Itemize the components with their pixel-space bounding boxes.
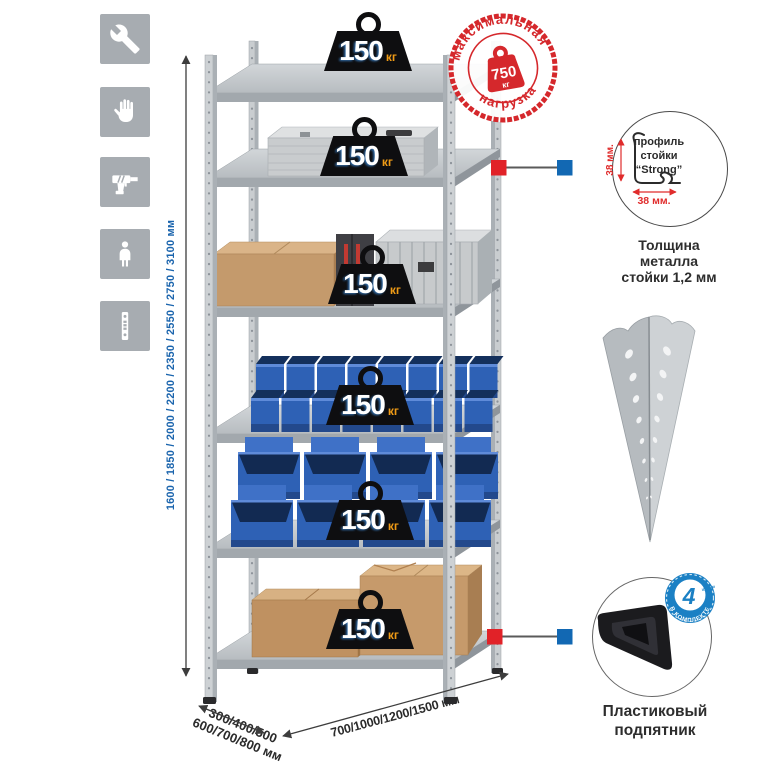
caption-line2: стойки 1,2 мм [621, 269, 717, 285]
load-unit: кг [386, 51, 397, 63]
profile-vertical-dim: 38 мм. [605, 144, 616, 176]
weight-body: 150 кг [320, 136, 408, 176]
post-front-right [443, 55, 455, 702]
load-unit: кг [382, 156, 393, 168]
shelf-load-badge-2: 150 кг [319, 117, 409, 176]
depth-dimension-line [199, 706, 264, 733]
shelf-load-badge-6: 150 кг [325, 590, 415, 649]
profile-label-line2: стойки [640, 150, 677, 162]
weight-body: 150 кг [326, 609, 414, 649]
post-back-left [249, 41, 259, 673]
load-value: 150 [341, 391, 385, 419]
plastic-foot-caption: Пластиковый подпятник [603, 702, 708, 741]
callout-connector-bottom [487, 629, 573, 645]
callout-connector-top [491, 160, 573, 176]
angle-post-illustration [603, 316, 695, 542]
load-value: 150 [339, 37, 383, 65]
weight-body: 150 кг [328, 264, 416, 304]
included-count-badge: 4 штуки в комплекте [663, 571, 717, 625]
shelf-load-badge-3: 150 кг [327, 245, 417, 304]
load-value: 150 [341, 615, 385, 643]
shelf-load-badge-1: 150 кг [323, 12, 413, 71]
caption-line1: Пластиковый [603, 702, 708, 721]
badge-number: 4 [682, 583, 696, 609]
load-unit: кг [388, 405, 399, 417]
profile-label-line1: профиль [634, 136, 684, 148]
load-unit: кг [388, 520, 399, 532]
weight-body: 150 кг [326, 385, 414, 425]
shelf-load-badge-4: 150 кг [325, 366, 415, 425]
product-infographic: 1600 / 1850 / 2000 / 2200 / 2350 / 2550 … [0, 0, 765, 765]
load-unit: кг [388, 629, 399, 641]
profile-horizontal-dim: 38 мм. [637, 195, 670, 207]
load-unit: кг [390, 284, 401, 296]
load-value: 150 [341, 506, 385, 534]
shelf-load-badge-5: 150 кг [325, 481, 415, 540]
max-load-stamp: максимальная нагрузка 750 кг [445, 10, 561, 126]
load-value: 150 [343, 270, 387, 298]
metal-thickness-caption: Толщина металла стойки 1,2 мм [621, 237, 717, 285]
caption-line2: подпятник [603, 721, 708, 740]
rack-feet [203, 668, 503, 704]
profile-label-line3: “Strong” [636, 164, 682, 176]
width-dimension-line [283, 674, 508, 736]
weight-body: 150 кг [324, 31, 412, 71]
post-front-left [205, 55, 217, 702]
load-value: 150 [335, 142, 379, 170]
weight-body: 150 кг [326, 500, 414, 540]
profile-callout-drawing: 38 мм. 38 мм. профиль стойки “Strong” [596, 108, 736, 232]
caption-line1: Толщина металла [621, 237, 717, 269]
